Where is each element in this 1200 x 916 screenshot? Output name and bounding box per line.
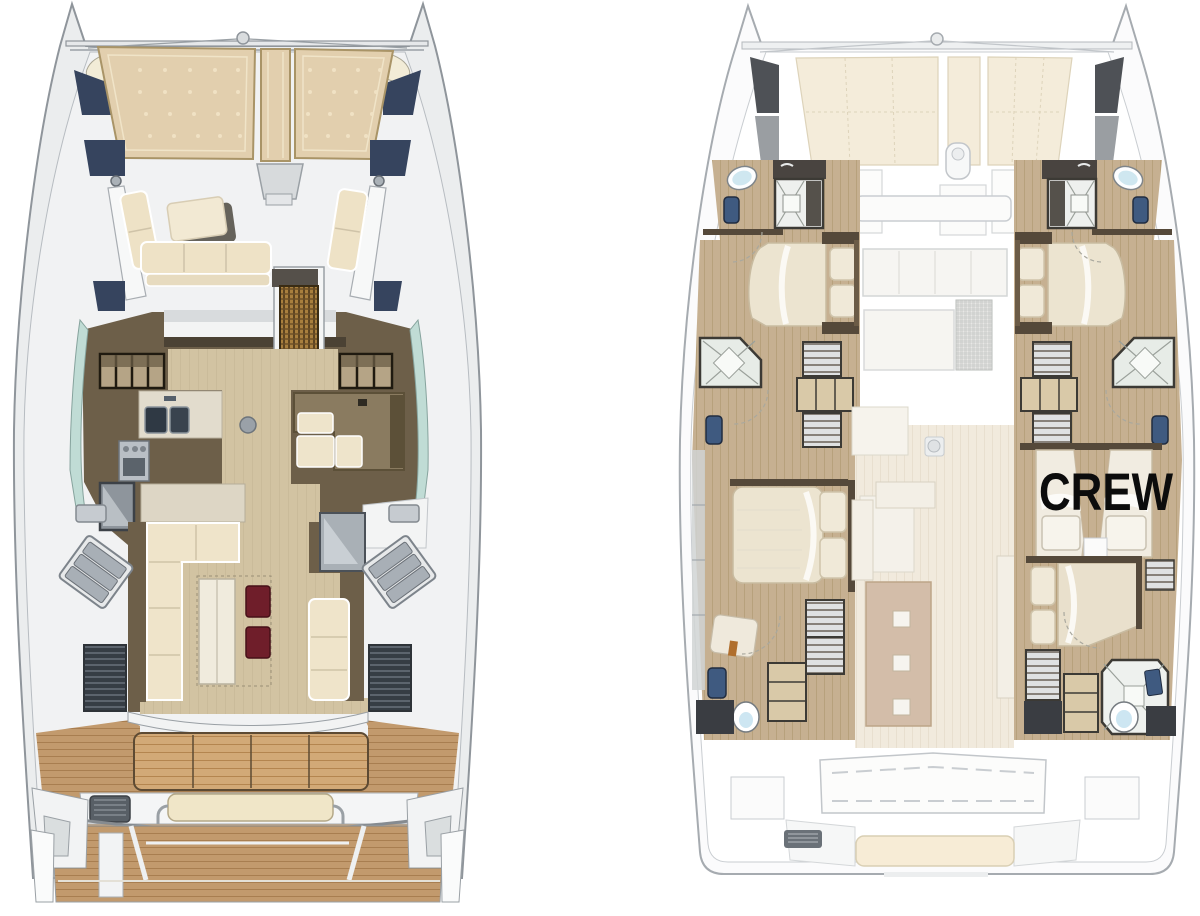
svg-text:CREW: CREW <box>1039 463 1173 522</box>
